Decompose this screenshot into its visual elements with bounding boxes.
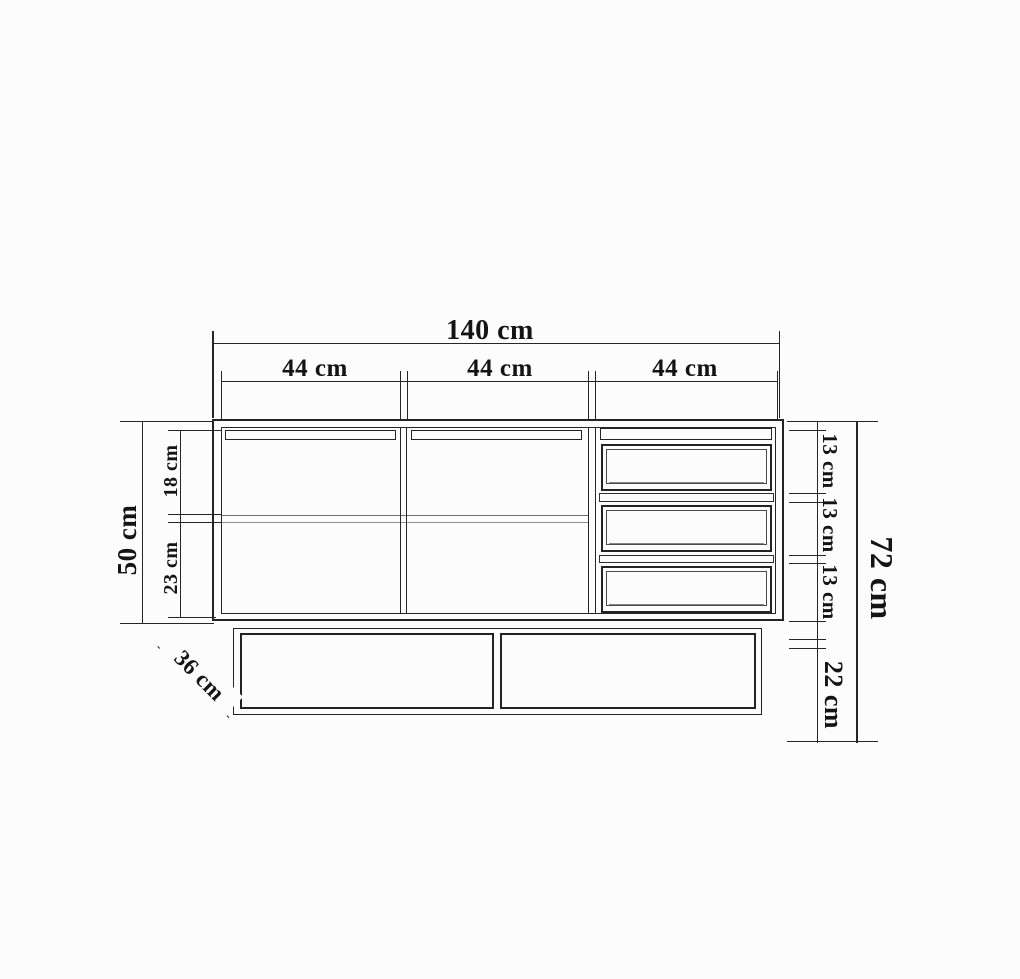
drawer-gap-rail <box>599 493 774 502</box>
drawer-3-handle-line <box>609 604 764 605</box>
dimension-tick <box>595 371 596 419</box>
cabinet-inner-left-line <box>221 427 222 614</box>
extension-line <box>120 421 213 422</box>
dimension-tick <box>588 371 589 419</box>
depth-label: 36 cm <box>157 632 243 718</box>
total-width-dimension-line <box>213 343 780 344</box>
shelf-line <box>222 515 588 517</box>
section-divider <box>406 427 407 614</box>
total-height-dimension-line <box>856 421 857 743</box>
upper-compartment-label: 18 cm <box>160 426 182 516</box>
base-height-label: 22 cm <box>820 645 846 745</box>
total-height-label: 72 cm <box>865 518 899 638</box>
total-width-label: 140 cm <box>380 316 600 346</box>
section-width-dimension-line <box>221 381 777 382</box>
section-divider <box>595 427 596 614</box>
furniture-dimension-drawing: 140 cm 44 cm 44 cm 44 cm 50 cm 18 cm 23 … <box>0 0 1020 979</box>
dimension-tick <box>212 331 213 418</box>
dimension-tick <box>221 371 222 419</box>
drawer-2-inner-panel <box>606 510 767 545</box>
extension-line <box>120 623 214 624</box>
section-width-3-label: 44 cm <box>620 355 750 381</box>
extension-line <box>168 617 216 618</box>
dimension-tick <box>777 371 778 419</box>
drawer-2-handle-line <box>609 543 764 544</box>
top-rail-section-3 <box>600 428 772 440</box>
section-divider <box>588 427 589 614</box>
lower-compartment-label: 23 cm <box>160 523 182 613</box>
dimension-tick <box>789 639 826 640</box>
upper-height-label: 50 cm <box>112 480 142 600</box>
shelf-line <box>222 522 588 523</box>
drawer-height-3-label: 13 cm <box>819 547 841 637</box>
drawer-3-inner-panel <box>606 571 767 607</box>
base-door-right <box>500 633 756 709</box>
cabinet-inner-right-line <box>775 427 776 614</box>
section-width-1-label: 44 cm <box>250 355 380 381</box>
base-door-left <box>240 633 494 709</box>
dimension-tick <box>400 371 401 419</box>
drawer-gap-rail <box>599 555 774 564</box>
drawer-1-inner-panel <box>606 449 767 484</box>
drawer-1-handle-line <box>609 482 764 483</box>
section-width-2-label: 44 cm <box>435 355 565 381</box>
dimension-tick <box>779 331 780 418</box>
section-divider <box>400 427 401 614</box>
dimension-tick <box>407 371 408 419</box>
top-rail-section-1 <box>225 430 396 440</box>
cabinet-inner-bottom-line <box>221 613 776 614</box>
top-rail-section-2 <box>411 430 582 440</box>
